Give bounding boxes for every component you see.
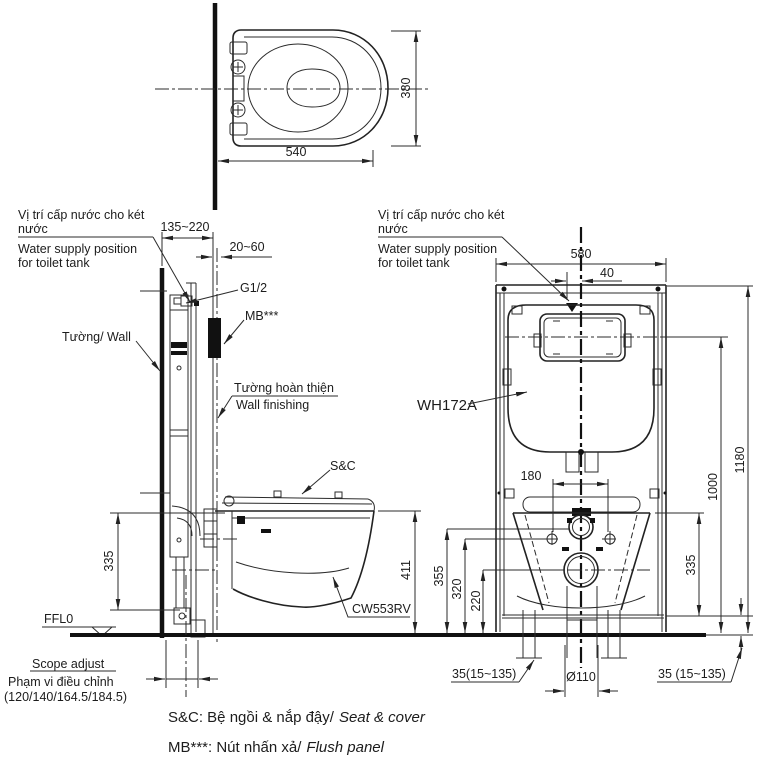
dim-total-height: 1180 bbox=[733, 447, 747, 474]
legend-flush-panel: MB***: Nút nhấn xả/Flush panel bbox=[168, 739, 385, 756]
dim-panel-height: 1000 bbox=[706, 473, 720, 501]
dim-supply-offset: 40 bbox=[600, 266, 614, 280]
supply-note-en-2: for toilet tank bbox=[378, 256, 450, 270]
dim-inlet-height: 355 bbox=[432, 566, 446, 587]
dim-drain-height: 220 bbox=[469, 591, 483, 612]
cover-top bbox=[225, 497, 368, 499]
seat-cover-outline bbox=[233, 30, 388, 146]
dim-foot-left: 35(15~135) bbox=[452, 667, 516, 681]
supply-note-vi-2: nước bbox=[378, 222, 408, 236]
legend-seat: S&C: Bệ ngồi & nắp đậy/Seat & cover bbox=[168, 709, 426, 726]
seat-ref-label: S&C bbox=[330, 459, 356, 473]
dim-drain-diameter: Ø110 bbox=[566, 670, 596, 684]
scope-adjust-en: Scope adjust bbox=[32, 657, 105, 671]
supply-note-vi-2: nước bbox=[18, 222, 48, 236]
supply-note-en-1: Water supply position bbox=[18, 242, 137, 256]
finishing-label-en: Wall finishing bbox=[236, 398, 309, 412]
dim-offset-range: 135~220 bbox=[160, 220, 209, 234]
dim-plan-width: 540 bbox=[286, 145, 307, 159]
legend: S&C: Bệ ngồi & nắp đậy/Seat & cover MB**… bbox=[168, 709, 426, 756]
supply-note-vi-1: Vị trí cấp nước cho két bbox=[378, 208, 505, 222]
cistern bbox=[170, 295, 188, 557]
frame-model-label: WH172A bbox=[417, 397, 477, 414]
inlet-fitting bbox=[181, 296, 192, 306]
bowl-opening bbox=[287, 69, 340, 107]
supply-note-vi-1: Vị trí cấp nước cho két bbox=[18, 208, 145, 222]
inlet-thread-label: G1/2 bbox=[240, 281, 267, 295]
plan-view: 540 380 bbox=[155, 3, 430, 210]
wall-label: Tường/ Wall bbox=[62, 330, 131, 344]
dim-bolt-height: 320 bbox=[450, 579, 464, 600]
seat-ring bbox=[248, 44, 348, 132]
dim-finish-range: 20~60 bbox=[229, 240, 264, 254]
scope-adjust-vi: Phạm vi điều chỉnh bbox=[8, 675, 114, 689]
dim-bolt-spacing: 180 bbox=[521, 469, 542, 483]
dim-side-depth-height: 411 bbox=[399, 560, 413, 580]
supply-note-en-2: for toilet tank bbox=[18, 256, 90, 270]
scope-adjust-values: (120/140/164.5/184.5) bbox=[4, 690, 127, 704]
dim-foot-right: 35 (15~135) bbox=[658, 667, 726, 681]
floor-level-label: FFL0 bbox=[44, 612, 73, 626]
wall-flange bbox=[204, 509, 217, 547]
dim-plan-depth: 380 bbox=[399, 78, 413, 99]
flush-panel-side bbox=[208, 318, 221, 358]
flush-panel-ref-label: MB*** bbox=[245, 309, 278, 323]
dim-side-rim-height: 335 bbox=[102, 551, 116, 572]
bowl-profile bbox=[233, 511, 374, 607]
side-view: Vị trí cấp nước cho két nước Water suppl… bbox=[4, 208, 753, 704]
drawing-canvas: 540 380 Vị trí cấp nước cho két nước Wat… bbox=[0, 0, 777, 757]
dim-front-rim-height: 335 bbox=[684, 555, 698, 576]
bowl-model-label: CW553RV bbox=[352, 602, 411, 616]
front-view: Vị trí cấp nước cho két nước Water suppl… bbox=[378, 208, 753, 697]
finishing-label-vi: Tường hoàn thiện bbox=[234, 381, 334, 395]
supply-note-en-1: Water supply position bbox=[378, 242, 497, 256]
technical-drawing: 540 380 Vị trí cấp nước cho két nước Wat… bbox=[0, 0, 777, 757]
